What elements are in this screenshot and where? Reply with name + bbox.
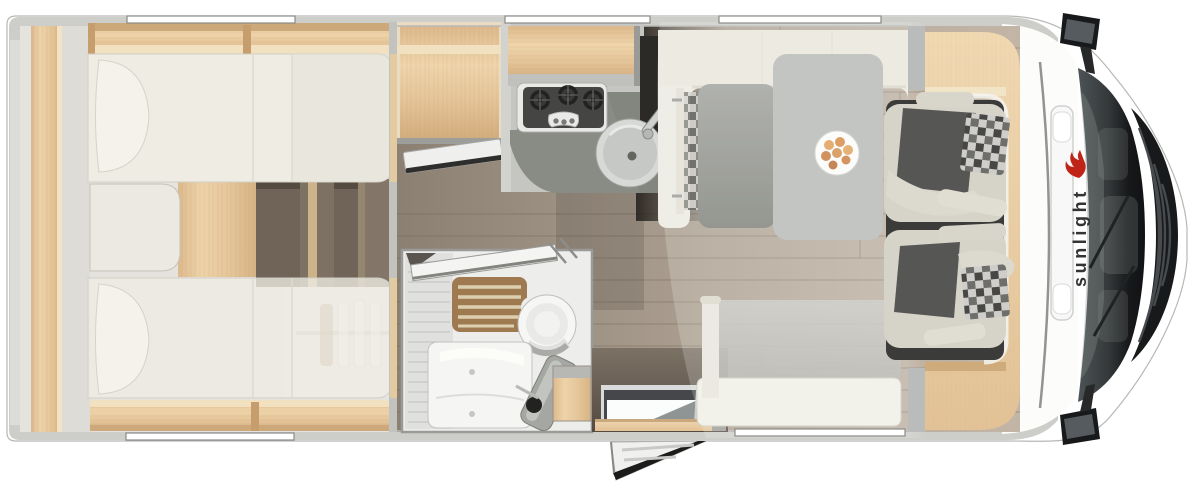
svg-text:sunlight: sunlight — [1070, 188, 1090, 287]
